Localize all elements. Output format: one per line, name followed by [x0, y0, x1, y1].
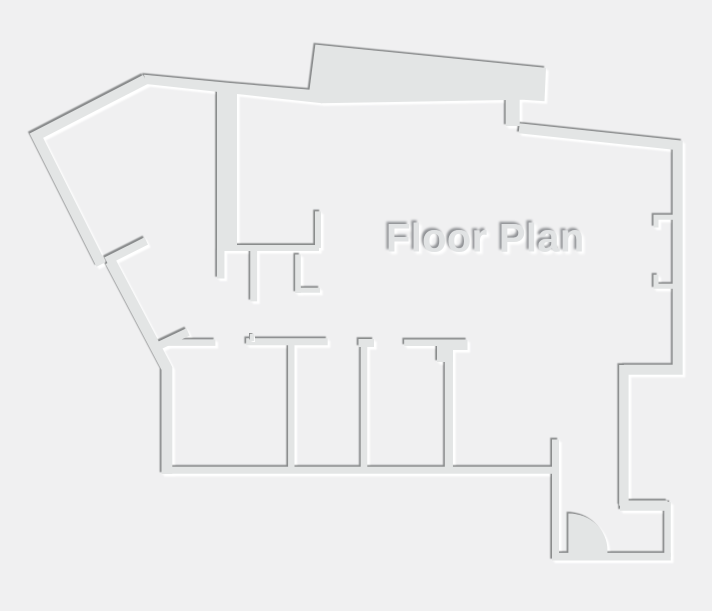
svg-text:Floor Plan: Floor Plan [386, 217, 585, 261]
